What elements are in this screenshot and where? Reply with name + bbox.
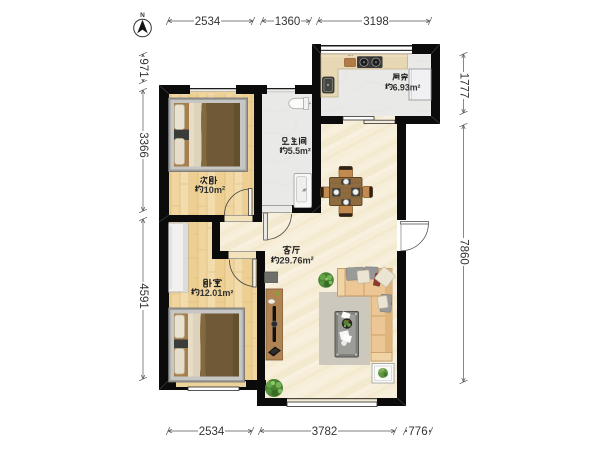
svg-text:7860: 7860 xyxy=(458,239,470,265)
svg-text:2534: 2534 xyxy=(195,16,221,28)
svg-text:1360: 1360 xyxy=(275,16,301,28)
svg-text:5.5m²: 5.5m² xyxy=(288,146,311,156)
svg-text:971: 971 xyxy=(137,58,149,77)
svg-text:6.93m²: 6.93m² xyxy=(393,83,421,93)
svg-text:N: N xyxy=(140,12,145,19)
svg-text:4591: 4591 xyxy=(137,283,149,309)
svg-text:29.76m²: 29.76m² xyxy=(280,256,314,266)
svg-text:1777: 1777 xyxy=(458,73,470,99)
svg-text:776: 776 xyxy=(408,426,427,438)
svg-text:10m²: 10m² xyxy=(204,185,225,195)
svg-text:12.01m²: 12.01m² xyxy=(200,288,234,298)
svg-text:2534: 2534 xyxy=(199,426,225,438)
svg-text:3782: 3782 xyxy=(312,426,338,438)
svg-text:3366: 3366 xyxy=(137,132,149,158)
svg-text:3198: 3198 xyxy=(363,16,389,28)
